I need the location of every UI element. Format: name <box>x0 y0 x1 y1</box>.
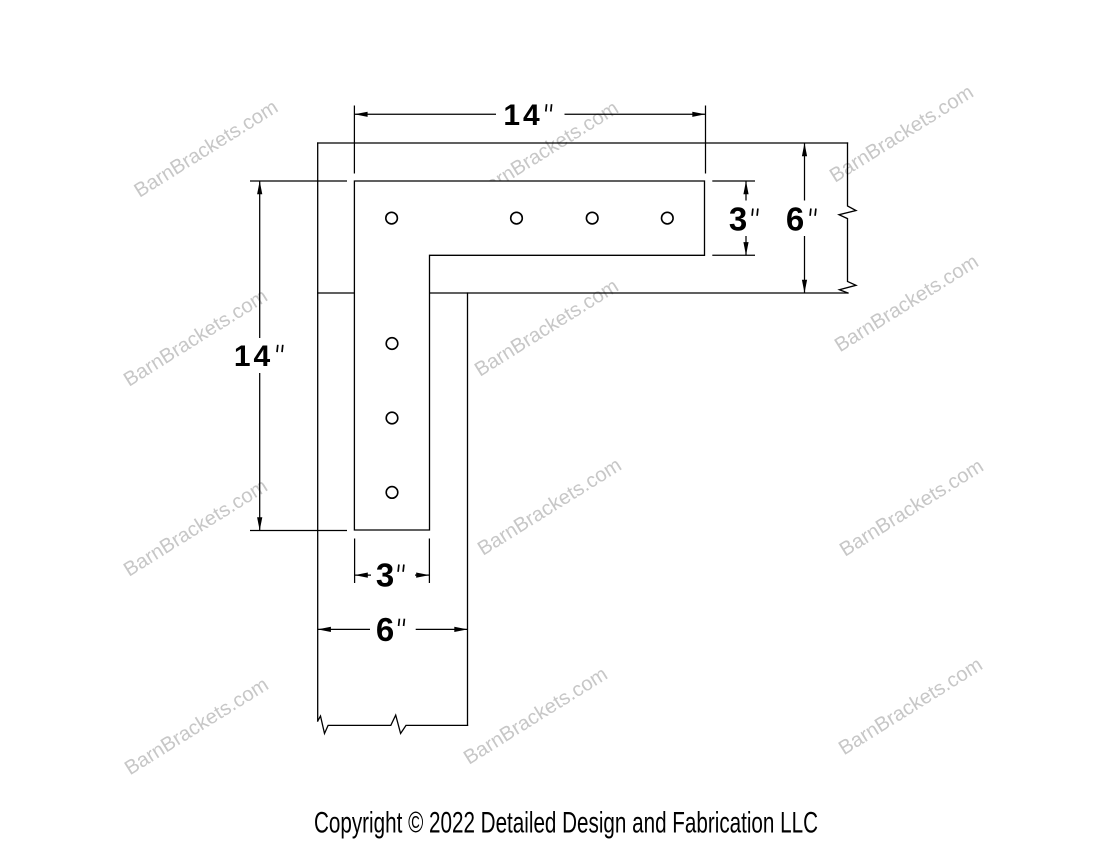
svg-text:BarnBrackets.com: BarnBrackets.com <box>460 663 612 769</box>
svg-text:BarnBrackets.com: BarnBrackets.com <box>120 475 272 581</box>
svg-text:BarnBrackets.com: BarnBrackets.com <box>826 81 978 187</box>
svg-text:6: 6 <box>786 201 804 238</box>
svg-text:BarnBrackets.com: BarnBrackets.com <box>121 674 273 780</box>
svg-text:14: 14 <box>503 99 542 132</box>
svg-text:BarnBrackets.com: BarnBrackets.com <box>474 454 626 560</box>
svg-text:BarnBrackets.com: BarnBrackets.com <box>836 455 988 561</box>
svg-text:BarnBrackets.com: BarnBrackets.com <box>831 251 983 357</box>
svg-text:Copyright © 2022 Detailed Desi: Copyright © 2022 Detailed Design and Fab… <box>314 807 818 840</box>
svg-text:BarnBrackets.com: BarnBrackets.com <box>120 285 272 391</box>
svg-text:6: 6 <box>376 611 394 648</box>
svg-text:BarnBrackets.com: BarnBrackets.com <box>471 275 623 381</box>
svg-text:3: 3 <box>376 557 394 594</box>
svg-text:3: 3 <box>729 201 747 238</box>
svg-text:14: 14 <box>234 340 273 373</box>
svg-text:BarnBrackets.com: BarnBrackets.com <box>835 654 987 760</box>
